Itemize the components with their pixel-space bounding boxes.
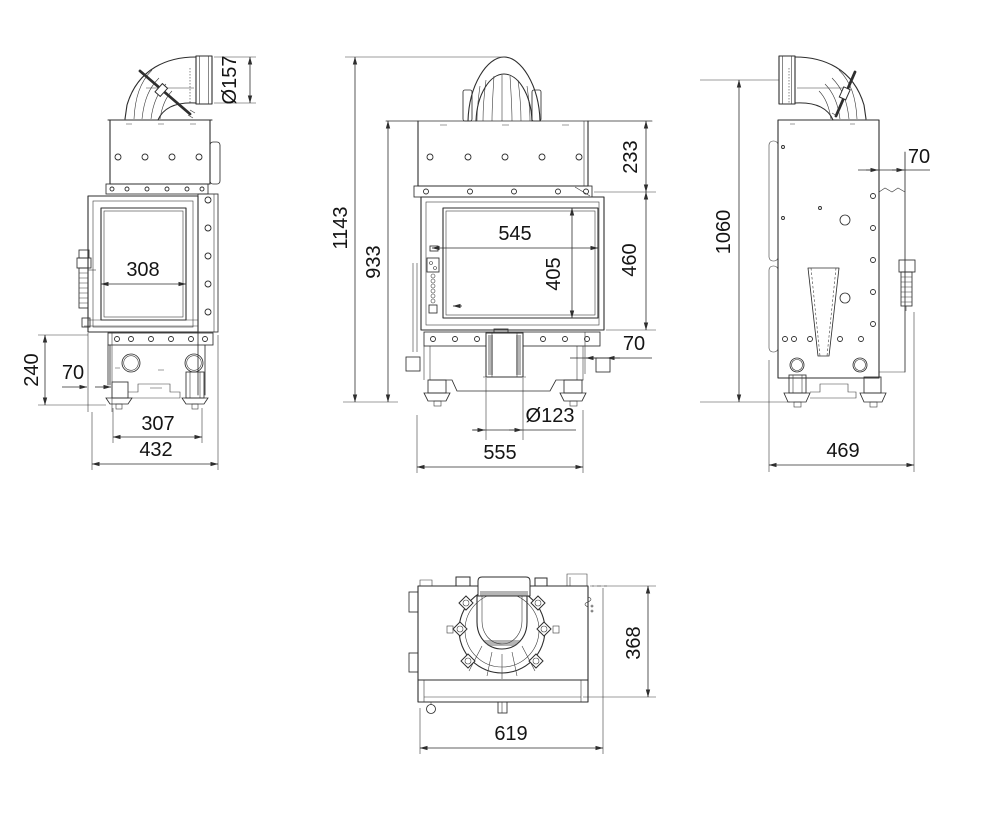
dim-body-height: 933 bbox=[363, 121, 388, 402]
glass-height-label: 405 bbox=[543, 257, 565, 290]
left-side-view: Ø157 bbox=[21, 56, 256, 470]
depth-label-left: 432 bbox=[139, 439, 172, 461]
dim-top-depth: 368 bbox=[583, 586, 656, 697]
air-inlet-diameter-label: Ø123 bbox=[526, 405, 575, 427]
dim-door-height: 460 bbox=[606, 192, 656, 330]
internal-air-funnel bbox=[808, 268, 839, 356]
door-height-label: 460 bbox=[619, 243, 641, 276]
flue-diameter-label: Ø157 bbox=[219, 56, 241, 105]
dim-glass-height: 405 bbox=[543, 208, 572, 318]
adjustable-foot-right bbox=[560, 380, 586, 406]
dim-flue-axis-height: 1060 bbox=[700, 80, 790, 402]
flue-outlet-flange bbox=[447, 587, 559, 679]
base-frame-front bbox=[406, 329, 610, 406]
air-vent-hole-right bbox=[790, 358, 804, 372]
upper-convection-box bbox=[108, 120, 220, 184]
top-plate bbox=[418, 586, 588, 680]
rear-body bbox=[769, 120, 879, 398]
flue-elbow bbox=[125, 56, 212, 120]
side-handle-spring bbox=[899, 260, 915, 311]
glass-width-label: 308 bbox=[126, 259, 159, 281]
top-width-label: 619 bbox=[494, 723, 527, 745]
side-bracket bbox=[409, 653, 418, 672]
technical-drawing-canvas: Ø157 bbox=[0, 0, 1000, 814]
body-height-label: 933 bbox=[363, 245, 385, 278]
firebox-width-label: 545 bbox=[498, 223, 531, 245]
front-view: 545 405 bbox=[330, 57, 656, 473]
adjustable-foot-left bbox=[424, 380, 450, 406]
foot-inset-label: 70 bbox=[62, 362, 84, 384]
dim-foot-inset: 70 bbox=[62, 332, 112, 412]
dim-rear-panel-offset: 70 bbox=[858, 146, 930, 170]
underside-fittings bbox=[427, 702, 508, 714]
dim-flue-diameter: Ø157 bbox=[214, 56, 256, 105]
adjustable-foot-front bbox=[106, 382, 132, 409]
upper-convection-box-front bbox=[418, 121, 588, 186]
dim-air-inlet-diameter: Ø123 bbox=[472, 378, 576, 440]
air-intake-duct bbox=[483, 333, 526, 377]
dim-hood-height: 233 bbox=[594, 121, 656, 192]
door-frame-front bbox=[413, 197, 604, 352]
top-depth-label: 368 bbox=[623, 626, 645, 659]
mounting-flange-front bbox=[414, 186, 592, 197]
air-vent-hole bbox=[185, 354, 203, 372]
dim-depth-right: 469 bbox=[769, 312, 914, 472]
wall-bracket bbox=[596, 358, 610, 372]
depth-label-right: 469 bbox=[826, 440, 859, 462]
dim-feet-spacing: 307 bbox=[113, 408, 202, 443]
plinth-height-label: 240 bbox=[21, 353, 43, 386]
overall-height-label: 1143 bbox=[330, 206, 352, 249]
right-side-view: 1060 bbox=[700, 56, 930, 472]
side-bracket bbox=[409, 592, 418, 612]
mounting-flange bbox=[106, 184, 208, 194]
adjustable-foot-rear bbox=[182, 372, 208, 409]
rear-heat-shield bbox=[871, 152, 906, 372]
dim-firebox-width: 545 bbox=[432, 223, 598, 248]
damper-rod bbox=[140, 71, 190, 114]
door-handle-latch bbox=[427, 246, 439, 313]
flue-collar-top bbox=[478, 577, 530, 596]
rear-panel-offset-label: 70 bbox=[908, 146, 930, 168]
feet-spacing-label: 307 bbox=[141, 413, 174, 435]
flue-elbow-right bbox=[779, 56, 866, 120]
dim-top-width: 619 bbox=[420, 588, 603, 754]
hood-height-label: 233 bbox=[620, 140, 642, 173]
body-width-label: 555 bbox=[483, 442, 516, 464]
technical-drawing-page: Ø157 bbox=[0, 0, 1000, 814]
flue-axis-height-label: 1060 bbox=[713, 210, 735, 255]
air-vent-hole-right bbox=[853, 358, 867, 372]
base-frame bbox=[106, 332, 213, 409]
air-vent-hole bbox=[122, 354, 140, 372]
adjustable-feet-right-view bbox=[784, 375, 886, 407]
top-view: 368 619 bbox=[409, 574, 656, 754]
convection-cowl bbox=[463, 57, 541, 121]
dim-side-offset: 70 bbox=[570, 332, 652, 374]
dim-glass-width: 308 bbox=[101, 259, 186, 284]
side-offset-label: 70 bbox=[623, 333, 645, 355]
dim-overall-height: 1143 bbox=[330, 57, 506, 402]
